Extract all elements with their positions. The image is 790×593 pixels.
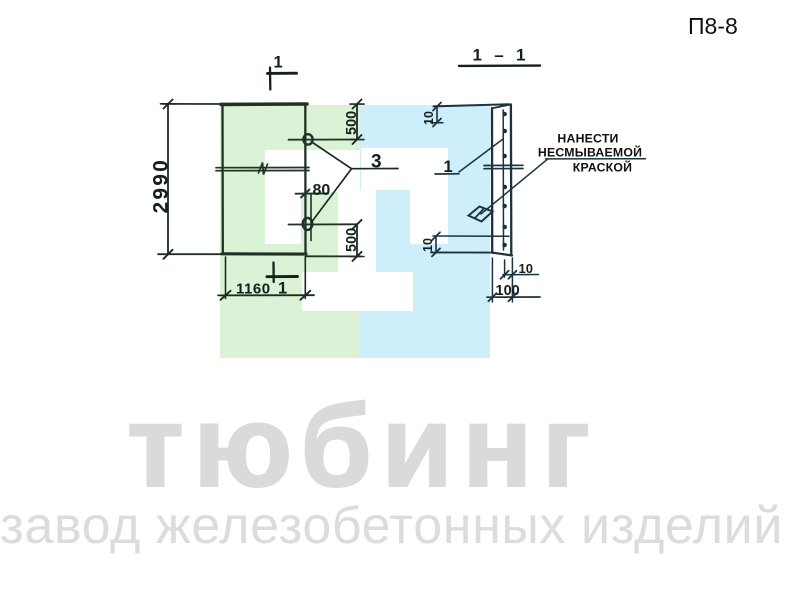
svg-text:НЕСМЫВАЕМОЙ: НЕСМЫВАЕМОЙ bbox=[538, 145, 642, 160]
svg-text:500: 500 bbox=[344, 228, 360, 252]
svg-text:1 – 1: 1 – 1 bbox=[473, 46, 530, 65]
svg-text:завод железобетонных изделий: завод железобетонных изделий bbox=[0, 497, 783, 555]
svg-text:2990: 2990 bbox=[150, 158, 173, 214]
svg-text:1160: 1160 bbox=[236, 281, 271, 298]
svg-text:100: 100 bbox=[496, 283, 520, 299]
svg-text:НАНЕСТИ: НАНЕСТИ bbox=[557, 132, 618, 146]
svg-text:500: 500 bbox=[344, 111, 360, 135]
svg-text:1: 1 bbox=[274, 54, 283, 72]
svg-text:80: 80 bbox=[313, 182, 331, 199]
svg-text:тюбинг: тюбинг bbox=[127, 381, 600, 511]
svg-text:П8-8: П8-8 bbox=[688, 13, 738, 39]
svg-text:10: 10 bbox=[421, 238, 435, 252]
svg-text:КРАСКОЙ: КРАСКОЙ bbox=[573, 160, 632, 175]
svg-text:10: 10 bbox=[519, 261, 533, 276]
svg-text:3: 3 bbox=[371, 152, 382, 173]
svg-text:10: 10 bbox=[422, 111, 436, 125]
